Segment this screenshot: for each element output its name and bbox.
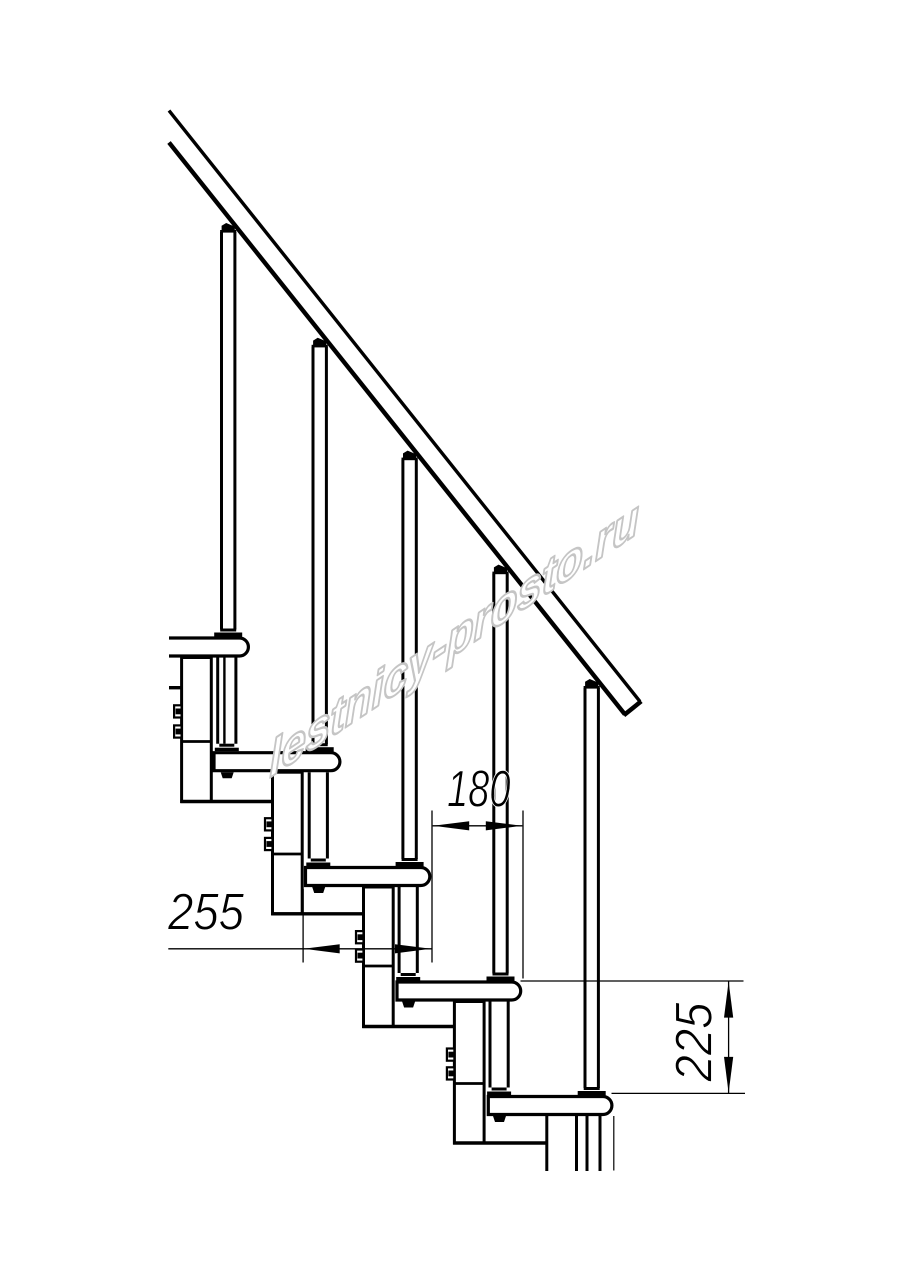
svg-text:225: 225	[666, 1002, 724, 1083]
svg-text:255: 255	[167, 884, 245, 942]
svg-text:180: 180	[447, 761, 511, 819]
